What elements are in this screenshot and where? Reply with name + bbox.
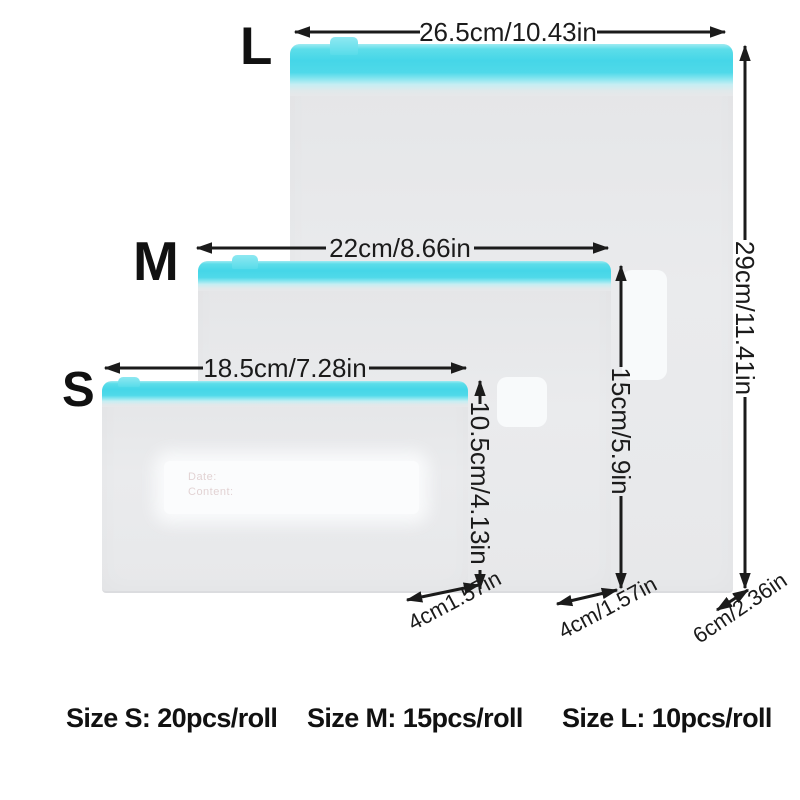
dim-width-l: 26.5cm/10.43in [419, 17, 597, 47]
footer-size-s-quantity: Size S: 20pcs/roll [66, 703, 277, 734]
footer-size-l-quantity: Size L: 10pcs/roll [562, 703, 772, 734]
dim-width-s: 18.5cm/7.28in [203, 353, 366, 383]
dimension-annotations: 26.5cm/10.43in 22cm/8.66in 18.5cm/7.28in… [0, 0, 800, 800]
dim-gusset-m: 4cm/1.57in [554, 571, 661, 644]
dim-height-l: 29cm/11.41in [730, 241, 760, 395]
dim-gusset-s: 4cm1.57in [404, 566, 505, 636]
footer-size-m-quantity: Size M: 15pcs/roll [307, 703, 523, 734]
dim-gusset-l: 6cm/2.36in [688, 567, 791, 648]
dim-width-m: 22cm/8.66in [329, 233, 471, 263]
dim-height-s: 10.5cm/4.13in [465, 401, 495, 564]
dim-height-m: 15cm/5.9in [606, 367, 636, 494]
product-size-diagram: Date: Content: L M S 26.5cm/10.43in 22cm… [0, 0, 800, 800]
